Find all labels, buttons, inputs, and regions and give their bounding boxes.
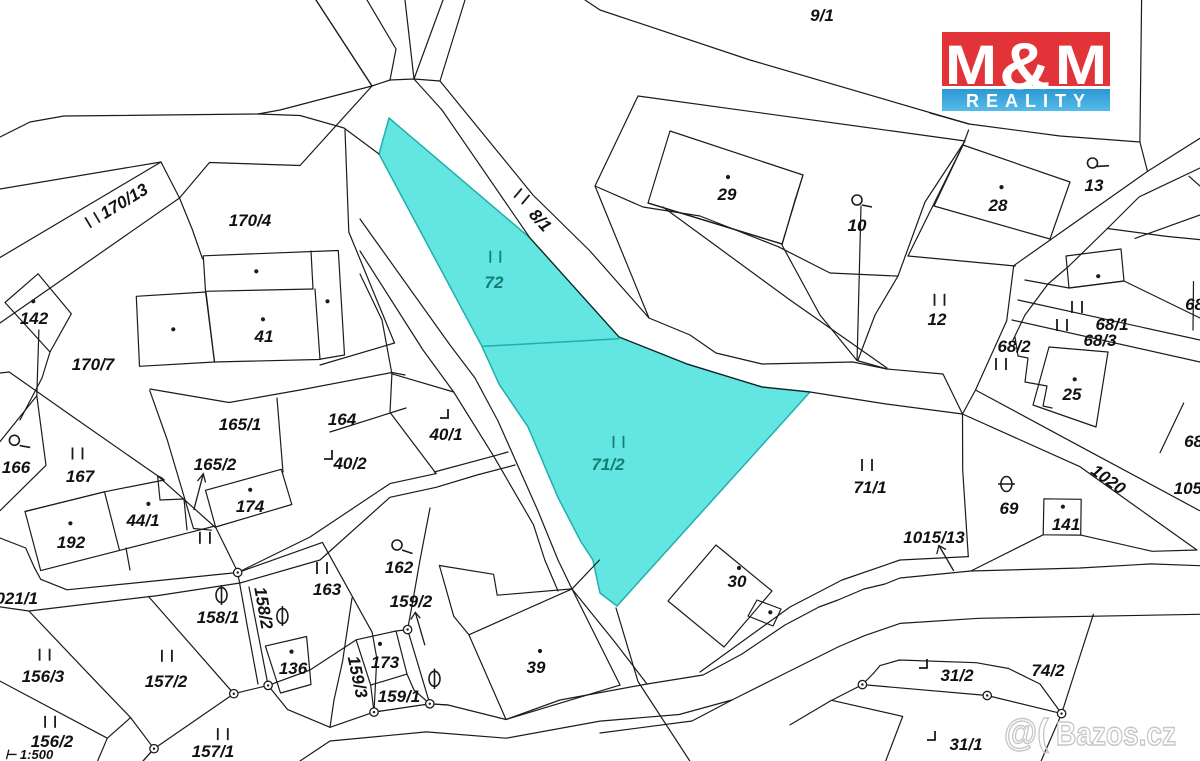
svg-text:74/2: 74/2 xyxy=(1031,661,1065,680)
svg-text:12: 12 xyxy=(928,310,947,329)
svg-text:157/1: 157/1 xyxy=(192,742,235,761)
svg-text:1021/1: 1021/1 xyxy=(0,589,38,608)
svg-text:30: 30 xyxy=(728,572,747,591)
svg-text:165/2: 165/2 xyxy=(194,455,237,474)
svg-text:156/3: 156/3 xyxy=(22,667,65,686)
svg-text:40/1: 40/1 xyxy=(428,425,462,444)
svg-text:⊢ 1:500: ⊢ 1:500 xyxy=(5,747,54,761)
svg-text:@(: @( xyxy=(1004,712,1049,754)
svg-text:13: 13 xyxy=(1085,176,1104,195)
svg-text:39: 39 xyxy=(527,658,546,677)
svg-text:41: 41 xyxy=(254,327,274,346)
svg-text:136: 136 xyxy=(279,659,308,678)
svg-text:Bazos.cz: Bazos.cz xyxy=(1056,716,1176,753)
svg-text:105: 105 xyxy=(1174,479,1200,498)
svg-text:40/2: 40/2 xyxy=(332,454,367,473)
svg-text:142: 142 xyxy=(20,309,49,328)
svg-text:167: 167 xyxy=(66,467,96,486)
svg-text:166: 166 xyxy=(2,458,31,477)
svg-text:170/4: 170/4 xyxy=(229,211,272,230)
svg-text:174: 174 xyxy=(236,497,265,516)
svg-text:31/2: 31/2 xyxy=(940,666,974,685)
svg-text:1015/13: 1015/13 xyxy=(903,528,965,547)
svg-text:158/1: 158/1 xyxy=(197,608,240,627)
svg-text:68: 68 xyxy=(1184,432,1200,451)
svg-text:29: 29 xyxy=(717,185,737,204)
svg-text:25: 25 xyxy=(1062,385,1082,404)
svg-text:REALITY: REALITY xyxy=(966,91,1092,111)
svg-text:162: 162 xyxy=(385,558,414,577)
svg-text:159/1: 159/1 xyxy=(378,687,421,706)
svg-text:31/1: 31/1 xyxy=(949,735,982,754)
svg-text:165/1: 165/1 xyxy=(219,415,262,434)
svg-text:72: 72 xyxy=(485,273,504,292)
svg-text:192: 192 xyxy=(57,533,86,552)
svg-text:173: 173 xyxy=(371,653,400,672)
svg-text:9/1: 9/1 xyxy=(810,6,834,25)
svg-text:M: M xyxy=(1055,33,1107,96)
svg-text:28: 28 xyxy=(988,196,1008,215)
svg-text:141: 141 xyxy=(1052,515,1080,534)
svg-text:159/2: 159/2 xyxy=(390,592,433,611)
svg-text:68: 68 xyxy=(1185,295,1200,314)
svg-text:71/1: 71/1 xyxy=(853,478,886,497)
svg-text:10: 10 xyxy=(848,216,867,235)
svg-text:170/7: 170/7 xyxy=(72,355,116,374)
svg-text:44/1: 44/1 xyxy=(125,511,159,530)
svg-text:163: 163 xyxy=(313,580,342,599)
svg-text:68/3: 68/3 xyxy=(1083,331,1117,350)
svg-text:69: 69 xyxy=(1000,499,1019,518)
svg-text:157/2: 157/2 xyxy=(145,672,188,691)
svg-text:M: M xyxy=(945,33,997,96)
svg-text:164: 164 xyxy=(328,410,357,429)
svg-text:68/2: 68/2 xyxy=(997,337,1031,356)
svg-text:71/2: 71/2 xyxy=(591,455,625,474)
